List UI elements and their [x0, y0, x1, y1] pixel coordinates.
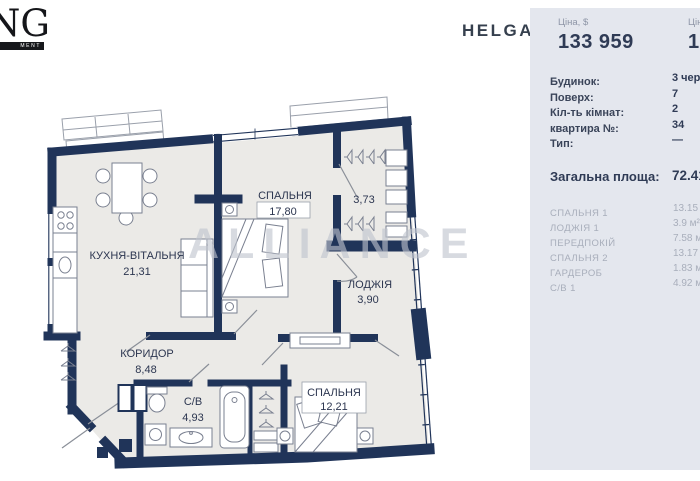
room-label-bath: С/В: [184, 396, 202, 408]
room-label-bedroom2: СПАЛЬНЯ: [307, 387, 361, 399]
room-area-kitchen: 21,31: [123, 266, 151, 278]
price-per-m2-label: Ціна за м²: [688, 17, 700, 28]
room-row-hallway: ПЕРЕДПОКІЙ 7.58 м²: [550, 233, 700, 248]
room-row-bedroom2: СПАЛЬНЯ 2 13.17 м²: [550, 248, 700, 263]
room-area-wardrobe: 3,73: [353, 194, 374, 206]
detail-row-rooms-count: Кіл-ть кімнат: 2: [550, 103, 700, 119]
total-area-row: Загальна площа: 72.41 м²: [550, 168, 700, 186]
room-row-wardrobe: ГАРДЕРОБ 1.83 м²: [550, 263, 700, 278]
detail-row-building: Будинок: 3 черга: [550, 72, 700, 88]
price-per-m2-value: 1 850: [688, 31, 700, 54]
room-area-bedroom1: 17,80: [269, 206, 297, 218]
price-per-m2: Ціна за м² 1 850: [688, 17, 700, 54]
price-usd: Ціна, $ 133 959: [558, 17, 678, 54]
room-area-bath: 4,93: [182, 412, 203, 424]
floorplan-drawing: КУХНЯ-ВІТАЛЬНЯ 21,31 СПАЛЬНЯ 17,80 3,73 …: [0, 0, 460, 481]
room-row-loggia1: ЛОДЖІЯ 1 3.9 м²: [550, 218, 700, 233]
bedroom1-furniture: [222, 203, 288, 313]
room-area-corridor: 8,48: [135, 364, 156, 376]
price-usd-value: 133 959: [558, 31, 678, 54]
info-panel: Ціна, $ 133 959 Ціна за м² 1 850 Будинок…: [530, 8, 700, 470]
room-label-corridor: КОРИДОР: [120, 348, 173, 360]
detail-row-floor: Поверх: 7: [550, 88, 700, 104]
detail-row-apartment-number: квартира №: 34: [550, 119, 700, 135]
details-list: Будинок: 3 черга Поверх: 7 Кіл-ть кімнат…: [550, 72, 700, 150]
room-row-bedroom1: СПАЛЬНЯ 1 13.15 м²: [550, 203, 700, 218]
room-row-bathroom: С/В 1 4.92 м²: [550, 278, 700, 293]
room-area-bedroom2: 12,21: [320, 401, 348, 413]
price-usd-label: Ціна, $: [558, 17, 678, 28]
room-areas-list: СПАЛЬНЯ 1 13.15 м² ЛОДЖІЯ 1 3.9 м² ПЕРЕД…: [550, 203, 700, 293]
listing-page: NG MENT HELGA: [0, 0, 700, 481]
room-label-kitchen: КУХНЯ-ВІТАЛЬНЯ: [89, 250, 184, 262]
room-label-loggia: ЛОДЖІЯ: [348, 279, 392, 291]
room-label-bedroom1: СПАЛЬНЯ: [258, 190, 312, 202]
room-area-loggia: 3,90: [357, 294, 378, 306]
project-title: HELGA: [462, 21, 534, 41]
detail-row-type: Тип: —: [550, 134, 700, 150]
